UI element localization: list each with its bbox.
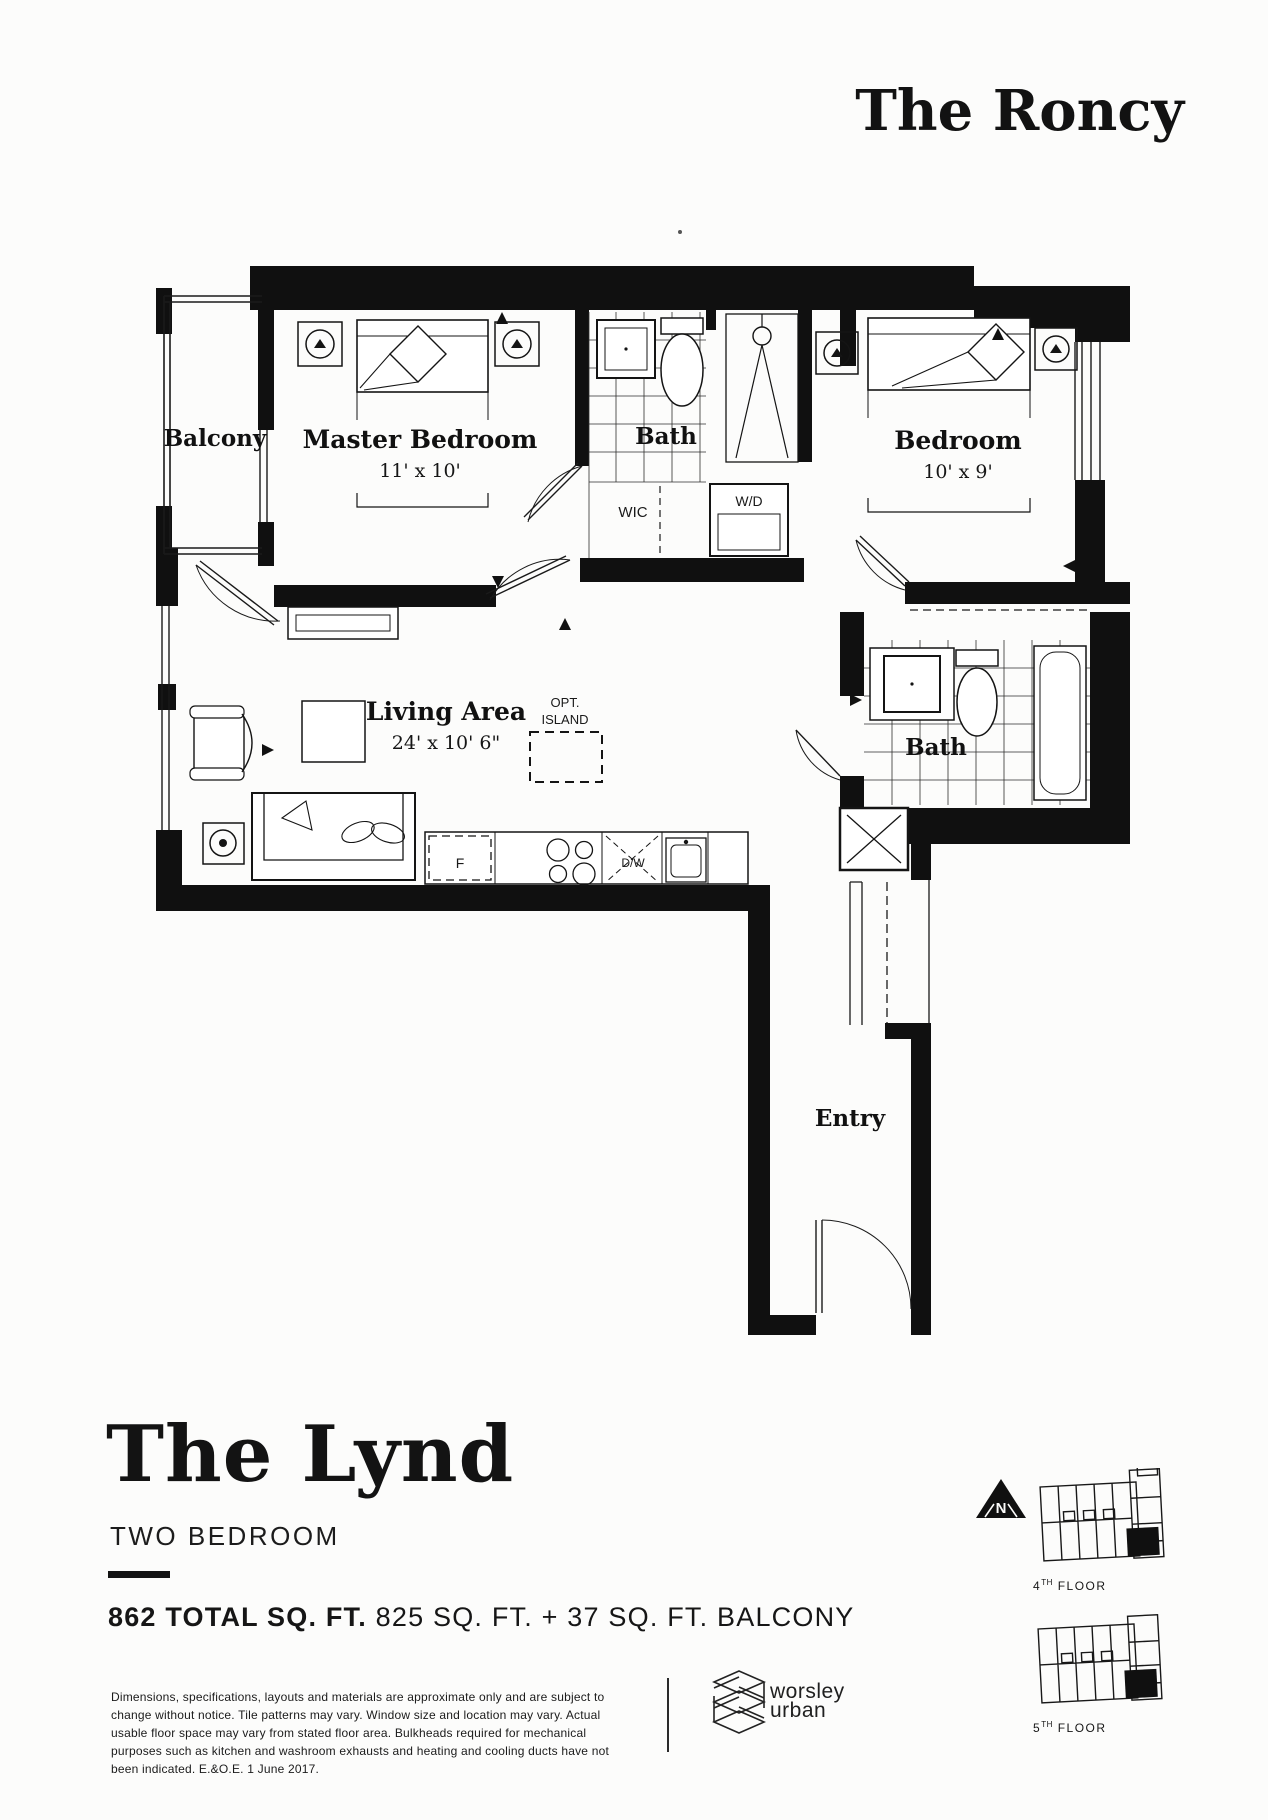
sofa: [252, 793, 415, 880]
master-bed: [357, 320, 488, 420]
label-living-dims: 24' x 10' 6": [392, 732, 500, 754]
compass-north-label: N: [996, 1500, 1007, 1517]
floorplan-sheet: { "header": { "brand": "The Roncy" }, "p…: [0, 0, 1268, 1820]
dimension-marks: [357, 493, 1030, 512]
north-compass-icon: N: [973, 1477, 1029, 1521]
label-fridge: F: [456, 855, 465, 871]
floor-suffix: TH: [1041, 1720, 1053, 1729]
bedroom-bed: [868, 318, 1030, 418]
keyplan-4th-floor: [1028, 1468, 1170, 1576]
unit-name-title: The Lynd: [106, 1416, 514, 1494]
armchair: [190, 706, 252, 780]
label-entry: Entry: [815, 1105, 886, 1132]
bath-upper-fixtures: [597, 318, 703, 406]
floor-number: 4: [1033, 1579, 1041, 1593]
label-living-area: Living Area: [366, 697, 526, 726]
label-balcony: Balcony: [164, 425, 267, 452]
floor-number: 5: [1033, 1721, 1041, 1735]
entry-closet: [850, 880, 929, 1025]
area-detail: 825 SQ. FT. + 37 SQ. FT. BALCONY: [367, 1602, 855, 1632]
floor-suffix: TH: [1041, 1578, 1053, 1587]
pot-light: [203, 823, 244, 864]
pot-light: [298, 322, 342, 366]
pot-light: [495, 322, 539, 366]
legal-disclaimer: Dimensions, specifications, layouts and …: [111, 1688, 636, 1778]
building-brand-title: The Roncy: [855, 78, 1184, 144]
label-master-dims: 11' x 10': [379, 460, 461, 482]
unit-area-line: 862 TOTAL SQ. FT. 825 SQ. FT. + 37 SQ. F…: [108, 1602, 854, 1633]
toilet-tank: [956, 650, 998, 666]
label-island: ISLAND: [542, 712, 589, 727]
label-washer-dryer: W/D: [735, 493, 762, 509]
floor-word: FLOOR: [1053, 1721, 1107, 1735]
sink-drain: [624, 347, 627, 350]
sink-drain: [910, 682, 913, 685]
highlighted-unit: [1124, 1669, 1157, 1699]
coffee-table: [302, 701, 365, 762]
shower-stall: [726, 314, 798, 462]
worsley-urban-logo-icon: [712, 1666, 766, 1734]
kitchen-counter: [425, 832, 748, 885]
label-bedroom-dims: 10' x 9': [923, 461, 993, 483]
worsley-urban-logo-text: worsley urban: [770, 1682, 845, 1720]
area-total: 862 TOTAL SQ. FT.: [108, 1602, 367, 1632]
tv-console: [288, 607, 398, 639]
label-bath-lower: Bath: [905, 734, 967, 761]
label-bath-upper: Bath: [635, 423, 697, 450]
floorplan-drawing: Balcony Master Bedroom 11' x 10' Bath WI…: [150, 260, 1150, 1340]
bathtub-basin: [1040, 652, 1080, 794]
developer-line2: urban: [770, 1701, 845, 1720]
toilet-bowl: [661, 334, 703, 406]
bath-lower-fixtures: [870, 646, 1086, 800]
keyplan-5th-floor: [1026, 1610, 1168, 1718]
unit-type: TWO BEDROOM: [110, 1521, 340, 1552]
label-island-opt: OPT.: [551, 695, 580, 710]
scan-speck: [678, 230, 682, 234]
optional-island: [530, 732, 602, 782]
toilet-bowl: [957, 668, 997, 736]
footer-divider: [667, 1678, 669, 1752]
faucet: [684, 840, 688, 844]
label-dishwasher: D/W: [621, 856, 645, 870]
keyplan-4th-floor-label: 4TH FLOOR: [1033, 1578, 1107, 1593]
label-wic: WIC: [618, 504, 647, 521]
title-rule: [108, 1571, 170, 1578]
label-bedroom: Bedroom: [894, 426, 1022, 455]
pot-light: [1035, 328, 1077, 370]
label-master-bedroom: Master Bedroom: [303, 425, 538, 454]
highlighted-unit: [1126, 1527, 1159, 1557]
keyplan-5th-floor-label: 5TH FLOOR: [1033, 1720, 1107, 1735]
shower-square: [840, 808, 908, 870]
toilet-tank: [661, 318, 703, 334]
floor-word: FLOOR: [1053, 1579, 1107, 1593]
